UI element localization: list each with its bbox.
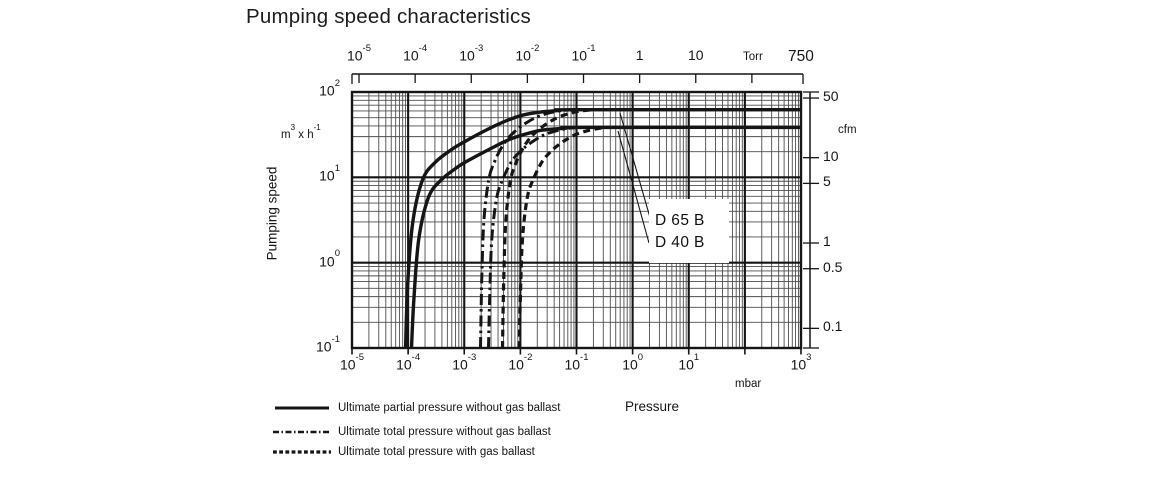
torr-axis — [352, 74, 803, 84]
curve-d65b-dashed — [503, 110, 594, 348]
curve-d40b-dashdot — [489, 127, 579, 348]
callout-line-d65b — [620, 113, 651, 221]
chart-canvas — [0, 0, 1160, 480]
page: Pumping speed characteristics Pumping sp… — [0, 0, 1160, 480]
major-grid — [352, 92, 801, 348]
cfm-axis — [803, 92, 819, 348]
